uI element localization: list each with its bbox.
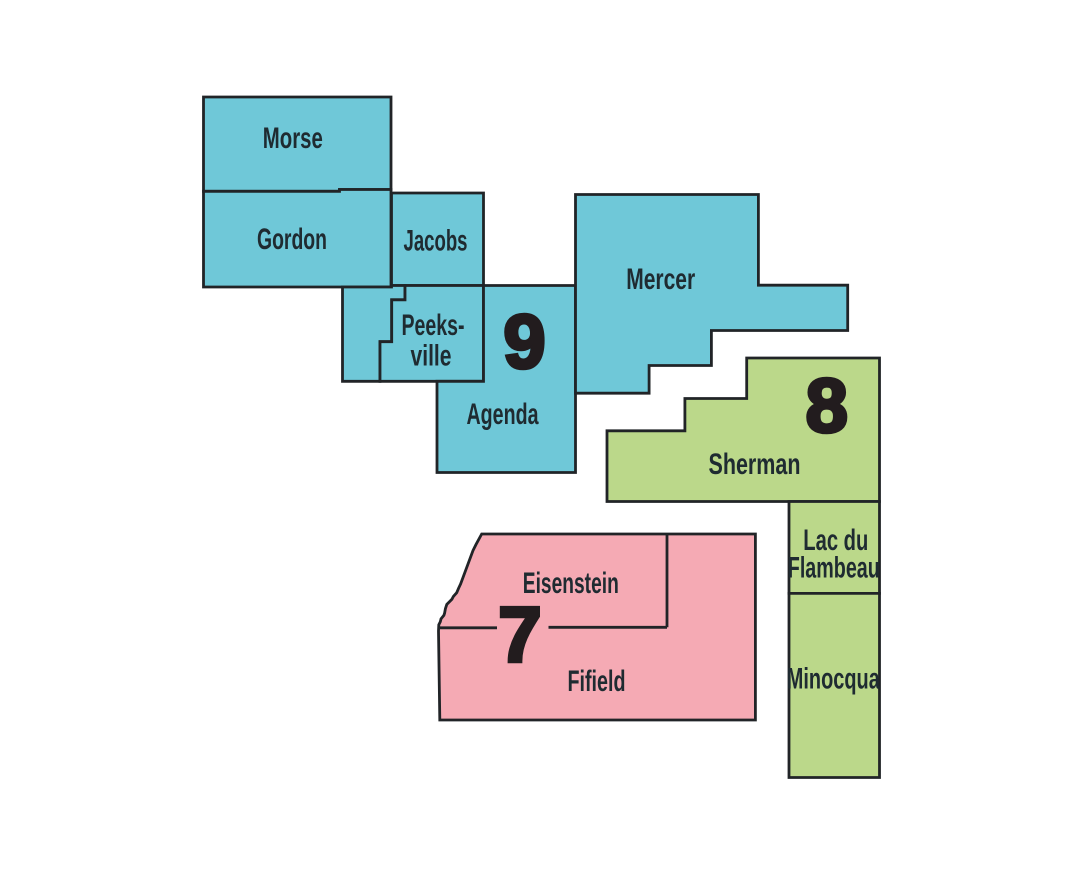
svg-text:Sherman: Sherman (709, 448, 801, 481)
svg-text:Gordon: Gordon (257, 223, 327, 256)
svg-text:Minocqua: Minocqua (787, 663, 880, 696)
svg-text:9: 9 (503, 300, 545, 385)
svg-text:8: 8 (806, 364, 848, 449)
svg-text:Flambeau: Flambeau (788, 552, 880, 585)
svg-text:ville: ville (411, 340, 452, 373)
svg-text:Fifield: Fifield (568, 665, 626, 698)
svg-text:Morse: Morse (263, 122, 323, 155)
svg-text:Peeks-: Peeks- (402, 309, 465, 342)
svg-text:Agenda: Agenda (467, 398, 539, 431)
svg-text:Mercer: Mercer (626, 263, 695, 296)
svg-text:7: 7 (498, 591, 541, 679)
svg-text:Jacobs: Jacobs (404, 225, 468, 258)
